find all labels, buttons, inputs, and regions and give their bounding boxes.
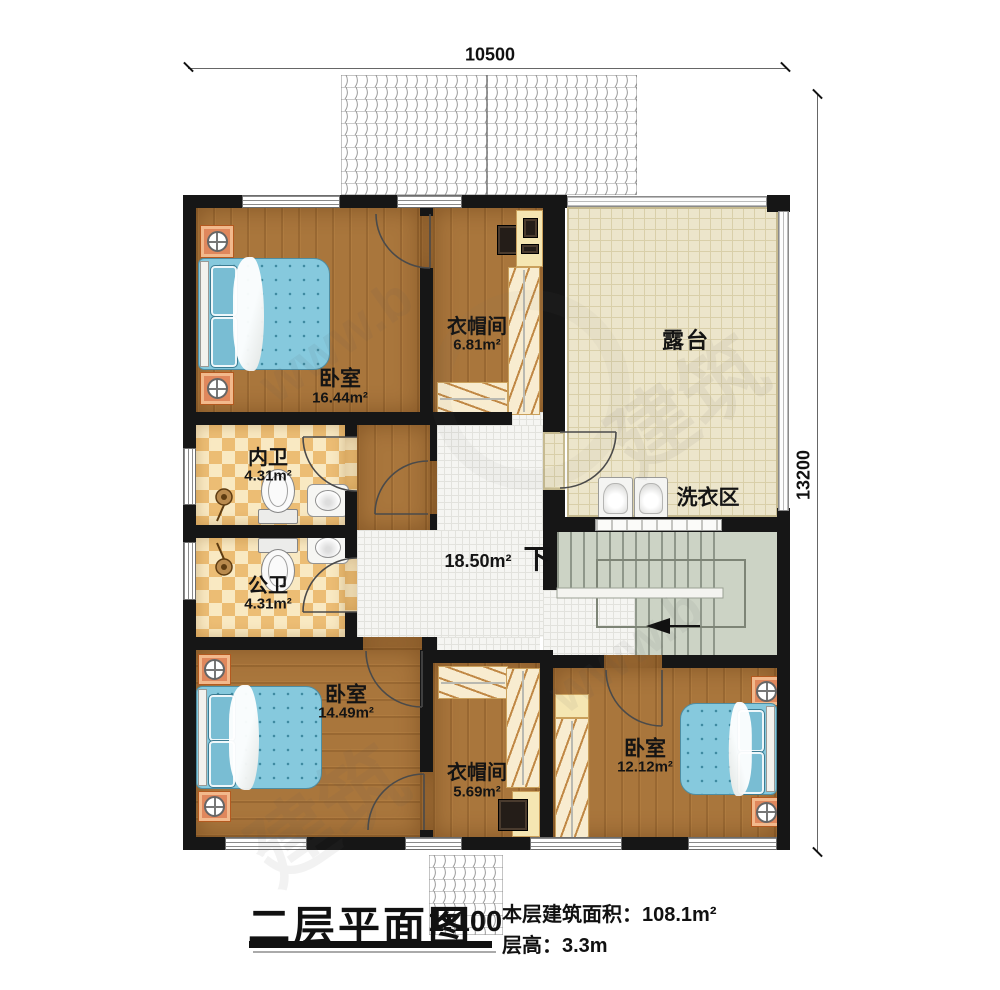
wall — [345, 425, 357, 437]
window — [688, 837, 777, 850]
hall-floor-under-stairs — [557, 597, 635, 655]
wall — [430, 650, 553, 663]
floor-plan-canvas: 10500 13200 — [0, 0, 1000, 990]
bed-headboard — [198, 689, 207, 786]
room-label-terrace: 露台 — [662, 330, 710, 352]
blanket — [233, 257, 264, 371]
wall — [420, 830, 433, 837]
closet-rack — [555, 718, 589, 840]
room-area-closet-bottom: 5.69m² — [453, 785, 501, 800]
side-table-nook — [555, 694, 589, 718]
room-area-bedroom-top-left: 16.44m² — [312, 391, 368, 406]
nightstand-dial-icon — [204, 659, 225, 680]
wall — [662, 655, 790, 668]
nightstand — [198, 791, 231, 822]
floor-area-value: 108.1m² — [642, 904, 717, 926]
washing-machine — [634, 477, 668, 519]
window — [225, 837, 307, 850]
hall-floor-strip — [543, 590, 557, 655]
stairs-landing — [715, 532, 777, 655]
wall — [553, 655, 604, 668]
dimension-line-top — [188, 68, 786, 69]
title-underline-thick — [249, 941, 492, 948]
watermark-logo-circle — [430, 290, 630, 490]
doorway-patch — [604, 655, 662, 668]
doorway-patch — [430, 461, 437, 514]
window — [397, 195, 462, 208]
closet-rack — [506, 668, 540, 788]
nightstand-dial-icon — [756, 681, 777, 702]
stairs-down-label: 下 — [524, 547, 551, 574]
wall — [183, 195, 567, 208]
nightstand — [200, 225, 234, 258]
room-label-bedroom-bottom-right: 卧室 — [624, 739, 666, 760]
floor-height-label: 层高： — [502, 935, 562, 957]
window — [183, 542, 196, 600]
nightstand-dial-icon — [204, 796, 225, 817]
room-area-bath-inner: 4.31m² — [244, 469, 292, 484]
room-label-bedroom-bottom-left: 卧室 — [325, 685, 367, 706]
floor-height-value: 3.3m — [562, 935, 608, 957]
dimension-width-label: 10500 — [465, 45, 515, 66]
terrace-railing-top — [567, 196, 767, 207]
wall — [777, 530, 790, 850]
wall — [196, 525, 357, 538]
room-area-bedroom-bottom-right: 12.12m² — [617, 760, 673, 775]
window — [242, 195, 340, 208]
wall — [345, 491, 357, 525]
floor-area-line: 本层建筑面积：108.1m² — [502, 898, 717, 927]
closet-rack — [438, 666, 508, 699]
room-area-bedroom-bottom-left: 14.49m² — [318, 706, 374, 721]
wall — [543, 490, 565, 518]
floor-height-line: 层高：3.3m — [502, 929, 608, 958]
bed-headboard — [766, 706, 775, 792]
nightstand — [198, 654, 231, 685]
drawing-scale: 1:100 — [428, 906, 502, 939]
dimension-tick — [780, 62, 791, 73]
bed — [198, 258, 330, 370]
doorway-patch — [345, 437, 357, 491]
room-label-laundry: 洗衣区 — [677, 488, 740, 509]
bed-headboard — [200, 261, 209, 367]
roof-hatch-top — [341, 75, 637, 195]
window — [183, 448, 196, 505]
vanity-item — [523, 218, 538, 238]
room-label-bath-inner: 内卫 — [248, 448, 288, 468]
hall-area-label: 18.50m² — [444, 552, 511, 570]
nightstand — [200, 372, 234, 405]
doorway-patch — [420, 772, 433, 830]
desk — [498, 799, 528, 831]
wall — [345, 538, 357, 558]
room-area-bath-public: 4.31m² — [244, 597, 292, 612]
dimension-line-right — [817, 95, 818, 853]
doorway-patch — [345, 558, 357, 612]
wall — [420, 650, 433, 772]
wall — [430, 425, 437, 461]
bed — [680, 703, 777, 795]
terrace-railing-right — [778, 211, 789, 511]
room-label-bath-public: 公卫 — [248, 576, 288, 596]
bed — [196, 686, 322, 789]
hall-floor-lower — [357, 530, 543, 637]
wall-corner-block — [767, 195, 790, 212]
sink — [307, 484, 349, 517]
wall — [422, 637, 437, 650]
blanket — [729, 702, 752, 796]
title-underline-thin — [253, 951, 496, 953]
vanity-item — [521, 244, 539, 254]
nightstand-dial-icon — [207, 378, 228, 399]
window — [405, 837, 462, 850]
vestibule-floor — [357, 425, 430, 530]
window — [530, 837, 622, 850]
wall — [345, 612, 357, 640]
dimension-height-label: 13200 — [794, 450, 815, 500]
hall-floor-south-strip — [430, 637, 540, 650]
room-label-closet-bottom: 衣帽间 — [447, 763, 507, 783]
washing-machine — [598, 477, 633, 519]
wall — [540, 655, 553, 837]
wall — [430, 514, 437, 530]
dimension-tick — [183, 62, 194, 73]
blanket — [229, 685, 259, 790]
laundry-counter — [595, 519, 722, 531]
nightstand-dial-icon — [756, 802, 777, 823]
wall — [420, 208, 433, 216]
wall — [183, 195, 196, 850]
floor-area-label: 本层建筑面积： — [502, 904, 642, 926]
room-label-bedroom-top-left: 卧室 — [319, 369, 361, 390]
doorway-patch — [363, 637, 422, 650]
nightstand-dial-icon — [207, 231, 228, 252]
wall — [196, 637, 363, 650]
doorway-patch — [420, 214, 433, 268]
